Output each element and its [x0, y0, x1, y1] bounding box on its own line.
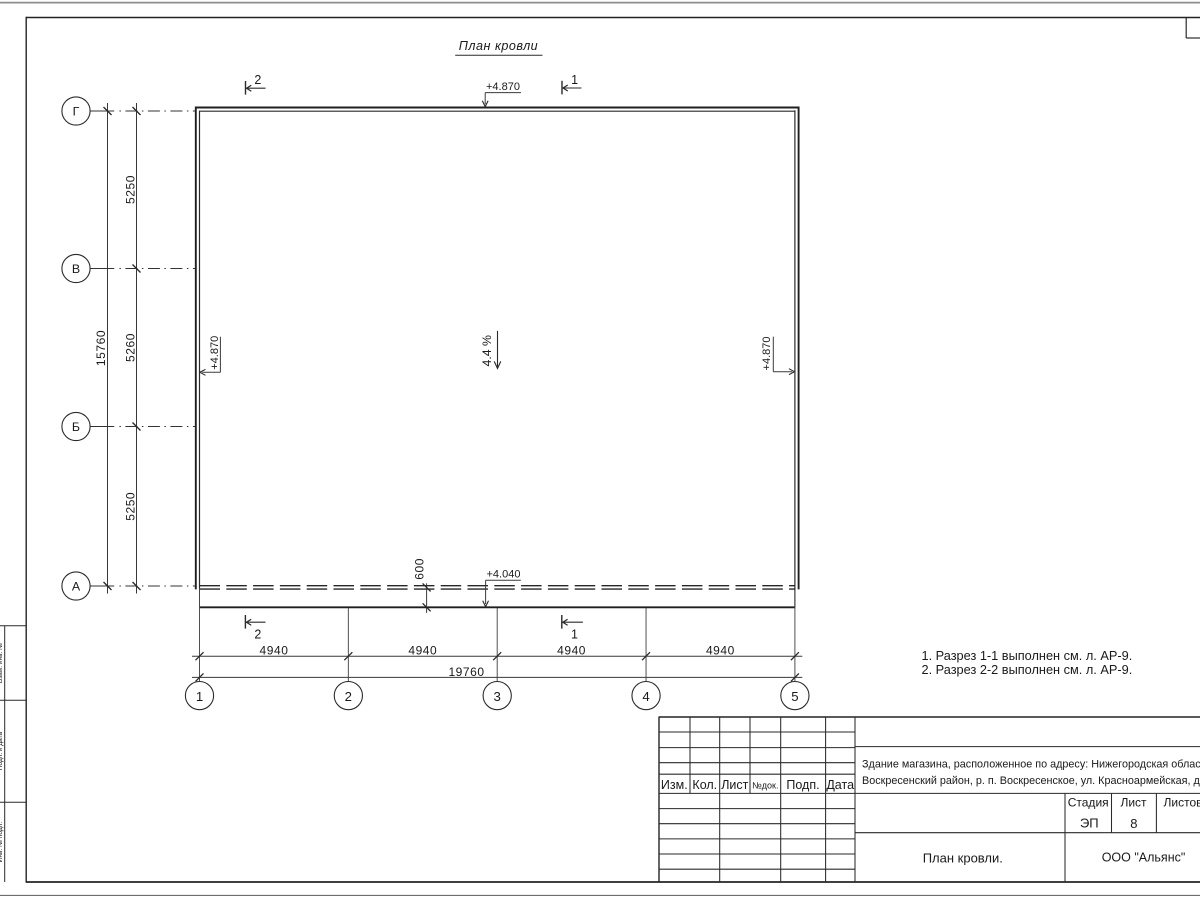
- svg-text:ООО "Альянс": ООО "Альянс": [1102, 851, 1186, 865]
- svg-text:2: 2: [345, 689, 352, 704]
- svg-text:+4.040: +4.040: [487, 569, 521, 581]
- svg-text:Листов: Листов: [1164, 796, 1200, 810]
- svg-text:4940: 4940: [408, 644, 437, 658]
- svg-text:19760: 19760: [448, 665, 484, 679]
- svg-text:Стадия: Стадия: [1068, 796, 1109, 810]
- svg-text:Подп. и дата: Подп. и дата: [0, 731, 4, 770]
- svg-text:4940: 4940: [557, 644, 586, 658]
- svg-text:Лист: Лист: [721, 778, 748, 792]
- svg-text:+4.870: +4.870: [209, 336, 221, 370]
- svg-text:4: 4: [642, 689, 649, 704]
- svg-text:1: 1: [571, 627, 578, 641]
- svg-text:План кровли: План кровли: [459, 39, 538, 53]
- svg-text:Подп.: Подп.: [786, 778, 819, 792]
- svg-text:Изм.: Изм.: [661, 778, 688, 792]
- svg-text:2: 2: [254, 73, 261, 87]
- svg-text:ЭП: ЭП: [1080, 815, 1099, 830]
- svg-text:8: 8: [1130, 816, 1137, 831]
- svg-text:5250: 5250: [123, 492, 137, 521]
- svg-text:Взам. инв. №: Взам. инв. №: [0, 643, 4, 683]
- svg-text:Лист: Лист: [1120, 796, 1147, 810]
- svg-text:Дата: Дата: [826, 778, 854, 792]
- svg-text:План кровли.: План кровли.: [923, 850, 1003, 865]
- svg-text:4940: 4940: [706, 644, 735, 658]
- svg-text:Б: Б: [72, 420, 80, 434]
- svg-text:1. Разрез 1-1 выполнен см. л.: 1. Разрез 1-1 выполнен см. л. АР-9.: [922, 648, 1133, 663]
- svg-text:4.4 %: 4.4 %: [480, 335, 494, 367]
- svg-text:+4.870: +4.870: [486, 81, 520, 93]
- svg-text:2: 2: [254, 627, 261, 641]
- svg-text:600: 600: [412, 558, 426, 580]
- svg-text:1: 1: [571, 73, 578, 87]
- svg-text:3: 3: [494, 689, 501, 704]
- svg-text:В: В: [72, 262, 80, 276]
- svg-text:5260: 5260: [123, 333, 137, 362]
- svg-text:Г: Г: [73, 105, 80, 119]
- svg-text:15760: 15760: [94, 330, 108, 366]
- svg-text:Здание магазина, расположенное: Здание магазина, расположенное по адресу…: [862, 758, 1200, 770]
- svg-text:А: А: [72, 580, 81, 594]
- svg-text:+4.870: +4.870: [761, 337, 773, 371]
- svg-text:5250: 5250: [123, 175, 137, 204]
- svg-text:1: 1: [196, 689, 203, 704]
- svg-text:Кол.: Кол.: [692, 778, 717, 792]
- svg-text:5: 5: [791, 689, 798, 704]
- svg-text:4940: 4940: [260, 644, 289, 658]
- svg-text:Воскресенский район, р. п. Вос: Воскресенский район, р. п. Воскресенское…: [862, 775, 1200, 787]
- svg-text:№док.: №док.: [752, 781, 778, 791]
- svg-text:2. Разрез 2-2 выполнен см. л.: 2. Разрез 2-2 выполнен см. л. АР-9.: [922, 662, 1133, 677]
- svg-text:Инв. № подл.: Инв. № подл.: [0, 822, 4, 863]
